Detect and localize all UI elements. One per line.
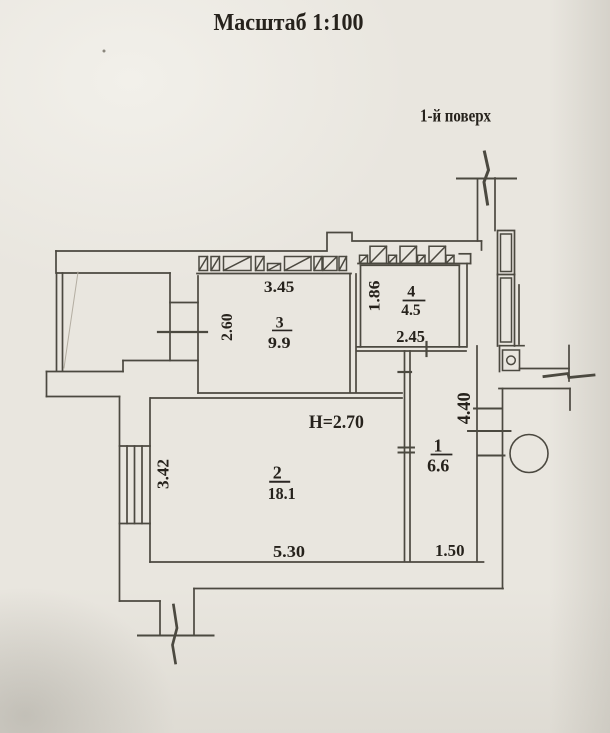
- svg-text:4: 4: [407, 284, 415, 301]
- svg-text:1.86: 1.86: [367, 281, 384, 312]
- svg-text:2.45: 2.45: [396, 327, 425, 346]
- svg-text:3.45: 3.45: [264, 279, 295, 296]
- svg-text:4.40: 4.40: [454, 392, 475, 424]
- svg-text:9.9: 9.9: [268, 335, 291, 352]
- svg-text:1: 1: [434, 436, 443, 456]
- svg-text:5.30: 5.30: [273, 542, 305, 561]
- svg-text:4.5: 4.5: [401, 302, 420, 319]
- svg-text:3: 3: [276, 315, 284, 332]
- svg-text:2: 2: [273, 463, 282, 483]
- svg-text:18.1: 18.1: [268, 484, 296, 503]
- svg-text:1-й поверх: 1-й поверх: [420, 106, 491, 126]
- svg-text:1.50: 1.50: [435, 541, 465, 560]
- svg-text:6.6: 6.6: [427, 455, 449, 475]
- svg-text:Н=2.70: Н=2.70: [309, 412, 364, 433]
- svg-text:2.60: 2.60: [219, 313, 236, 341]
- svg-text:3.42: 3.42: [153, 459, 172, 489]
- svg-text:Масштаб 1:100: Масштаб 1:100: [214, 10, 364, 36]
